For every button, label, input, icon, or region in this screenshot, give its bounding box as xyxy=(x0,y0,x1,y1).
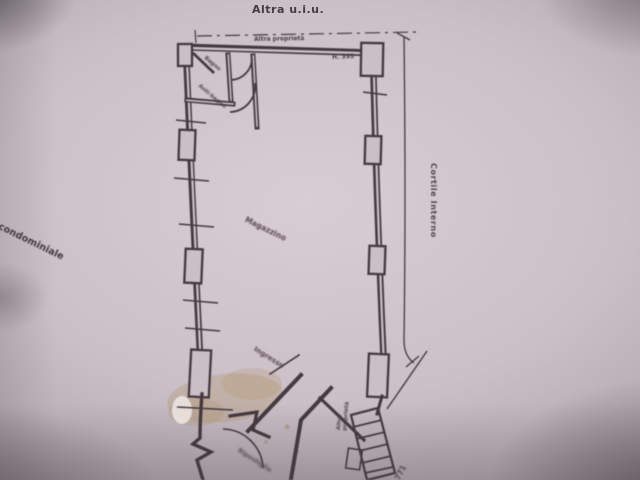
paper-bright-spot xyxy=(172,396,192,424)
door-arc-antibagno xyxy=(231,59,252,80)
floor-plan-drawing xyxy=(0,0,640,480)
label-cortile-interno: Cortile Interno xyxy=(429,163,437,238)
label-altra-proprieta-top: Altra proprietà xyxy=(254,36,304,43)
interior-walls xyxy=(187,55,257,127)
dimension-line-courtyard xyxy=(387,33,427,409)
label-height-note: H. 395 xyxy=(332,54,354,61)
boundary-diagonal xyxy=(387,351,427,409)
label-altra-uiu: Altra u.i.u. xyxy=(252,4,324,16)
scanned-floor-plan-photo: Altra u.i.u. Altra proprietà H. 395 Bagn… xyxy=(0,0,640,480)
door-arc-magazzino xyxy=(230,83,255,112)
top-boundary-dashed-line xyxy=(195,30,418,43)
paper-stain xyxy=(165,368,299,454)
staircase xyxy=(346,408,395,480)
